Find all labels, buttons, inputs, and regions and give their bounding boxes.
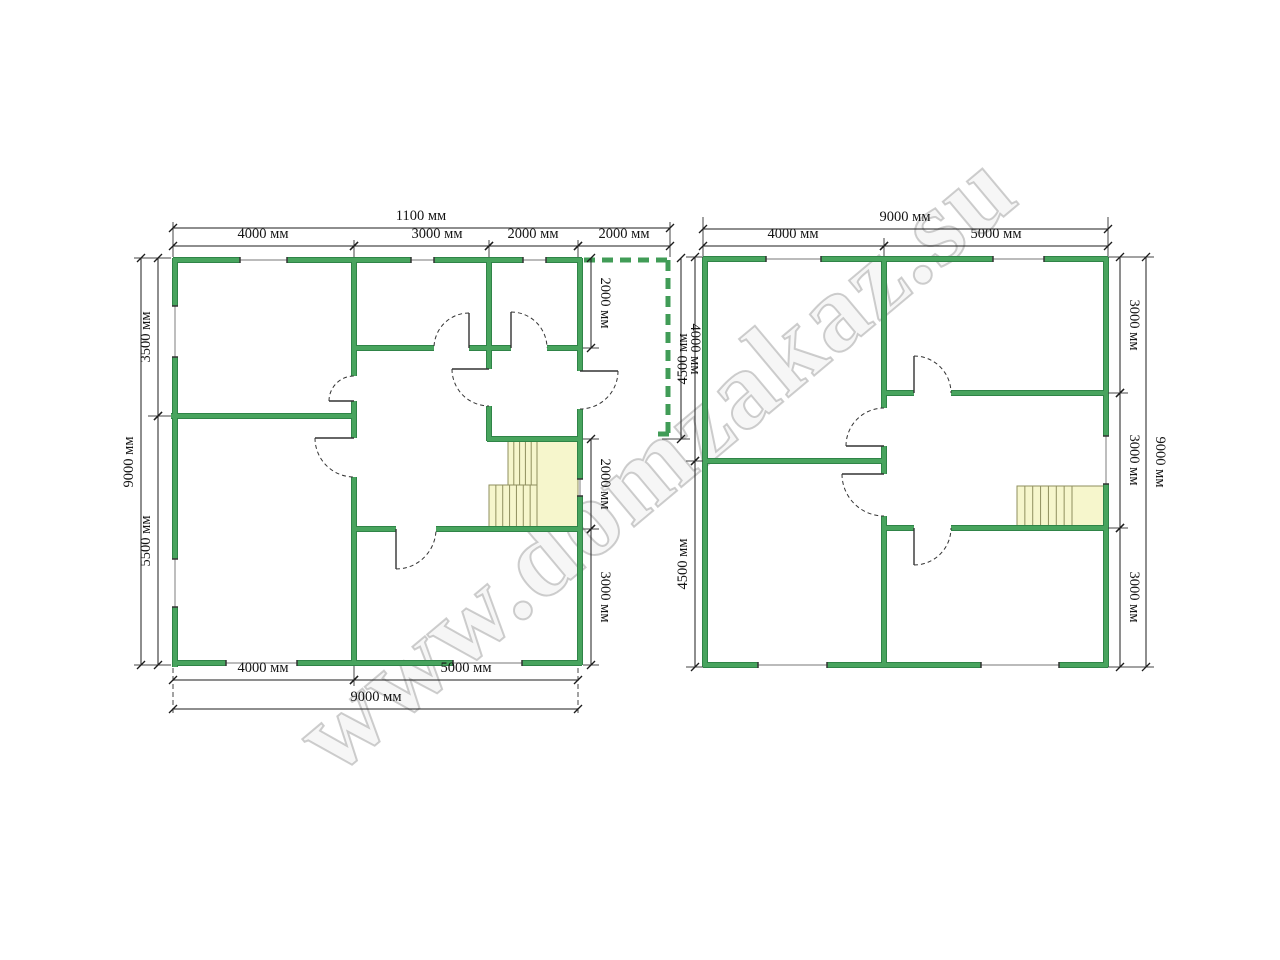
door-swing-arc	[914, 356, 951, 393]
dimension-label: 2000 мм	[597, 459, 613, 510]
dimension-label: 9000 мм	[880, 209, 931, 225]
dimension-label: 1100 мм	[396, 208, 446, 224]
staircase	[508, 441, 537, 485]
dimension-label: 3000 мм	[1126, 572, 1142, 623]
dimension-label: 3000 мм	[1126, 435, 1142, 486]
dimension-label: 2000 мм	[508, 226, 559, 242]
dimension-label: 3500 мм	[138, 312, 154, 363]
dimension-label: 4500 мм	[675, 539, 691, 590]
dimension-label: 5000 мм	[441, 660, 492, 676]
dimension-label: 5000 мм	[971, 226, 1022, 242]
walls-layer	[171, 257, 1108, 667]
dimension-label: 9000 мм	[1152, 437, 1168, 488]
dimensions-layer: 1100 мм4000 мм3000 мм2000 мм2000 мм9000 …	[121, 208, 1168, 713]
staircase	[1072, 486, 1106, 527]
door-swing-arc	[315, 438, 354, 477]
dimension-label: 2000 мм	[597, 278, 613, 329]
dimension-label: 3000 мм	[1126, 300, 1142, 351]
floor-plans-drawing: 1100 мм4000 мм3000 мм2000 мм2000 мм9000 …	[0, 0, 1280, 960]
dimension-label: 4000 мм	[768, 226, 819, 242]
staircase	[537, 441, 578, 527]
door-swing-arc	[842, 474, 884, 516]
dimension-label: 3000 мм	[412, 226, 463, 242]
door-swing-arc	[434, 313, 469, 348]
dimension-label: 9000 мм	[121, 437, 137, 488]
door-swing-arc	[452, 369, 489, 406]
dimension-label: 9000 мм	[351, 689, 402, 705]
dimension-label: 4000 мм	[238, 226, 289, 242]
door-swing-arc	[846, 408, 884, 446]
windows-layer	[172, 256, 1109, 668]
dimension-label: 5500 мм	[138, 516, 154, 567]
door-swing-arc	[511, 312, 547, 348]
door-swing-arc	[396, 529, 436, 569]
extension-lines-layer	[134, 217, 1154, 714]
dimension-label: 2000 мм	[599, 226, 650, 242]
door-swing-arc	[914, 528, 951, 565]
dimension-label: 4500 мм	[675, 334, 691, 385]
dimension-label: 4000 мм	[238, 660, 289, 676]
dimension-label: 3000 мм	[597, 572, 613, 623]
door-swing-arc	[580, 371, 618, 409]
door-swing-arc	[329, 376, 354, 401]
floorplan-stage: www.domzakaz.su 1100 мм4000 мм3000 мм200…	[0, 0, 1280, 960]
